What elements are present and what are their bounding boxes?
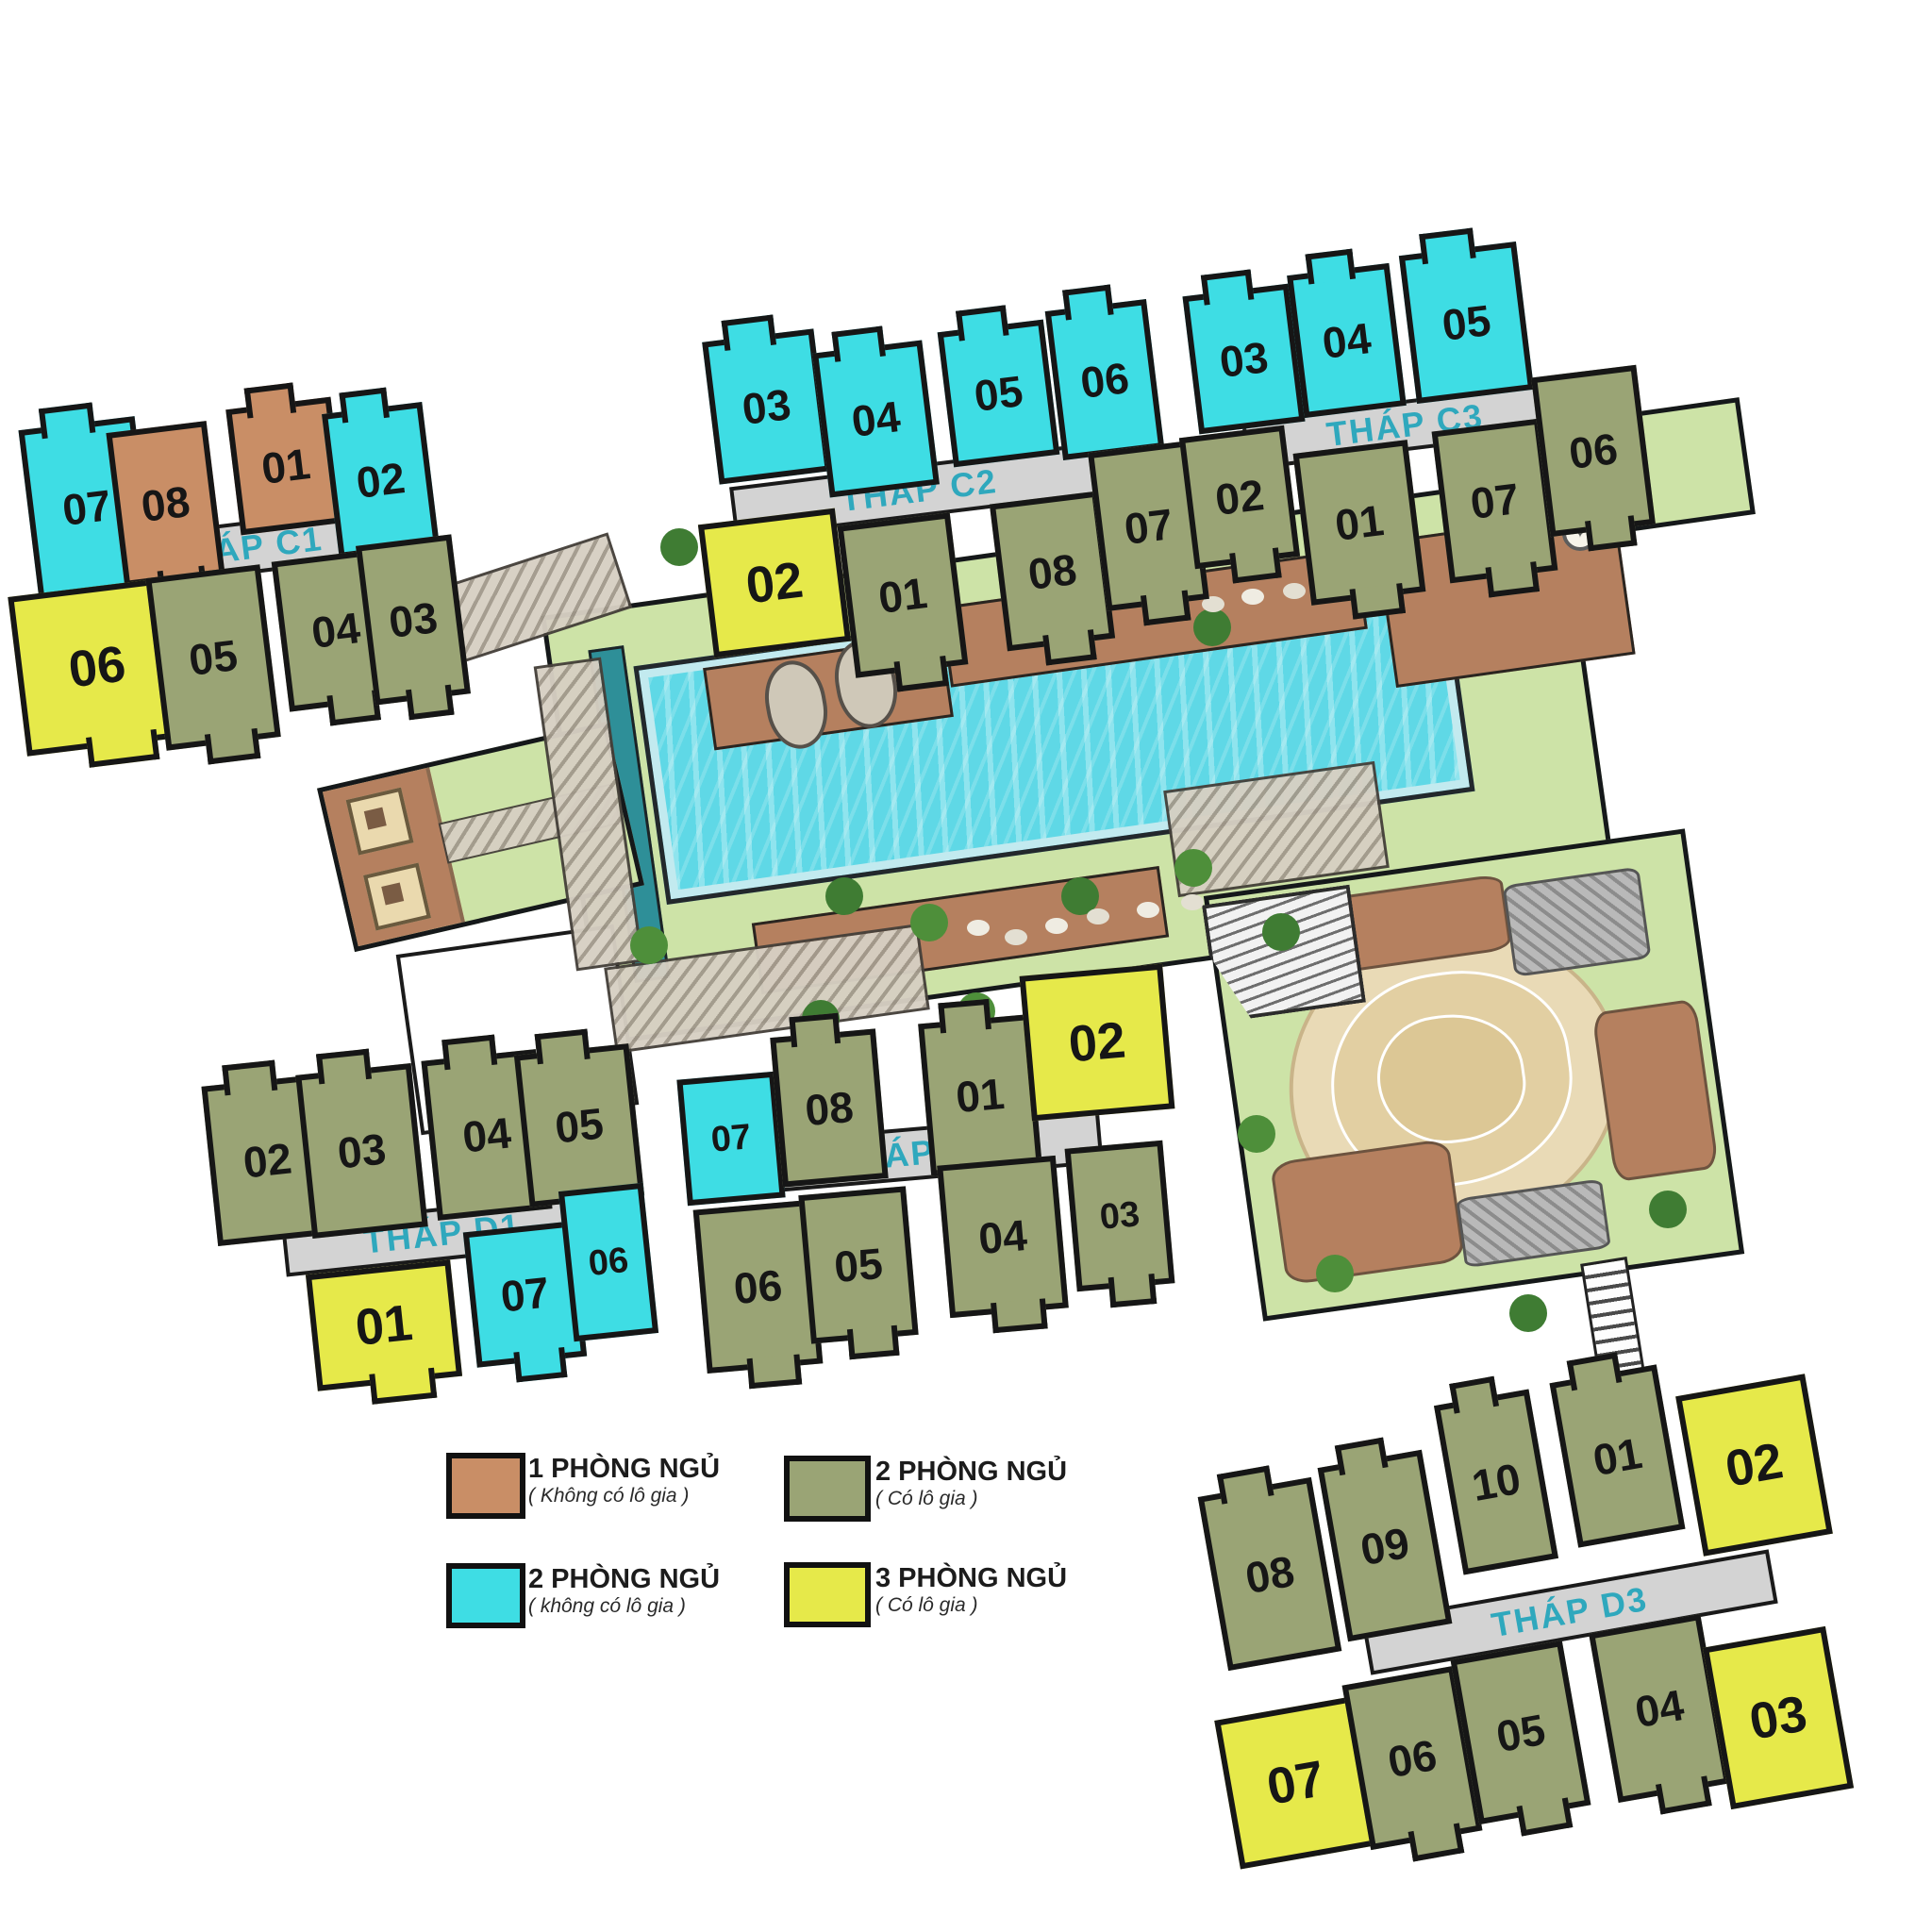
unit-d1-01[interactable]: 01 [306, 1259, 462, 1391]
legend-item-2br-no-loggia: 2 PHÒNG NGỦ ( không có lô gia ) [528, 1564, 720, 1618]
legend-subtitle: ( không có lô gia ) [528, 1595, 720, 1618]
unit-d1-03[interactable]: 03 [295, 1063, 428, 1239]
unit-c1-05[interactable]: 05 [145, 564, 281, 750]
stone-pavement-top-right [1502, 867, 1651, 977]
unit-d2-07[interactable]: 07 [676, 1072, 785, 1207]
unit-c2-02[interactable]: 02 [698, 508, 851, 658]
unit-c1-02[interactable]: 02 [322, 402, 440, 558]
legend-item-1br: 1 PHÒNG NGỦ ( Không có lô gia ) [528, 1454, 720, 1507]
unit-c2-04[interactable]: 04 [812, 340, 940, 497]
legend-subtitle: ( Có lô gia ) [875, 1594, 1067, 1617]
gazebo-icon [346, 788, 414, 856]
legend-swatch-2br-no-loggia [446, 1563, 525, 1628]
unit-c3-04[interactable]: 04 [1287, 263, 1407, 418]
unit-d2-05[interactable]: 05 [798, 1186, 918, 1343]
unit-c3-05[interactable]: 05 [1399, 241, 1534, 404]
unit-c1-03[interactable]: 03 [356, 534, 471, 705]
unit-c3-02[interactable]: 02 [1179, 425, 1300, 570]
unit-d1-06[interactable]: 06 [558, 1183, 658, 1342]
unit-c2-01[interactable]: 01 [838, 512, 969, 677]
unit-d3-08[interactable]: 08 [1198, 1477, 1342, 1671]
legend-swatch-2br-loggia [784, 1456, 871, 1522]
legend-subtitle: ( Có lô gia ) [875, 1488, 1067, 1510]
legend-title: 3 PHÒNG NGỦ [875, 1563, 1067, 1594]
unit-c2-05[interactable]: 05 [938, 320, 1060, 468]
unit-d3-09[interactable]: 09 [1318, 1450, 1453, 1642]
legend-item-2br-loggia: 2 PHÒNG NGỦ ( Có lô gia ) [875, 1457, 1067, 1510]
legend-subtitle: ( Không có lô gia ) [528, 1485, 720, 1507]
unit-d3-10[interactable]: 10 [1434, 1390, 1558, 1575]
unit-d2-01[interactable]: 01 [918, 1014, 1042, 1176]
unit-d3-04[interactable]: 04 [1589, 1614, 1730, 1803]
seating-deck-right [1591, 999, 1719, 1183]
unit-d2-04[interactable]: 04 [937, 1156, 1069, 1318]
unit-d2-08[interactable]: 08 [770, 1028, 888, 1187]
legend-item-3br-loggia: 3 PHÒNG NGỦ ( Có lô gia ) [875, 1563, 1067, 1617]
bbq-deck [323, 767, 465, 946]
site-plan-canvas: ◉ ✦ THÁP C1 07 08 01 02 06 05 04 03 THÁP… [0, 0, 1932, 1932]
unit-d3-02[interactable]: 02 [1675, 1374, 1833, 1557]
gazebo-icon [363, 863, 431, 931]
legend-swatch-3br-loggia [784, 1562, 871, 1627]
seating-deck-bottom-left [1270, 1138, 1465, 1285]
unit-d2-02[interactable]: 02 [1020, 964, 1175, 1122]
unit-d3-01[interactable]: 01 [1550, 1364, 1686, 1547]
unit-c3-01[interactable]: 01 [1293, 440, 1426, 606]
unit-c2-03[interactable]: 03 [702, 328, 831, 484]
unit-d2-03[interactable]: 03 [1065, 1141, 1175, 1291]
legend-title: 2 PHÒNG NGỦ [528, 1564, 720, 1595]
legend-swatch-1br [446, 1453, 525, 1519]
unit-c2-06[interactable]: 06 [1045, 299, 1165, 460]
unit-d1-05[interactable]: 05 [514, 1043, 644, 1207]
unit-c1-08[interactable]: 08 [106, 421, 225, 587]
legend-title: 1 PHÒNG NGỦ [528, 1454, 720, 1485]
unit-c3-03[interactable]: 03 [1182, 284, 1305, 435]
legend-title: 2 PHÒNG NGỦ [875, 1457, 1067, 1488]
unit-c3-06[interactable]: 06 [1531, 365, 1656, 537]
